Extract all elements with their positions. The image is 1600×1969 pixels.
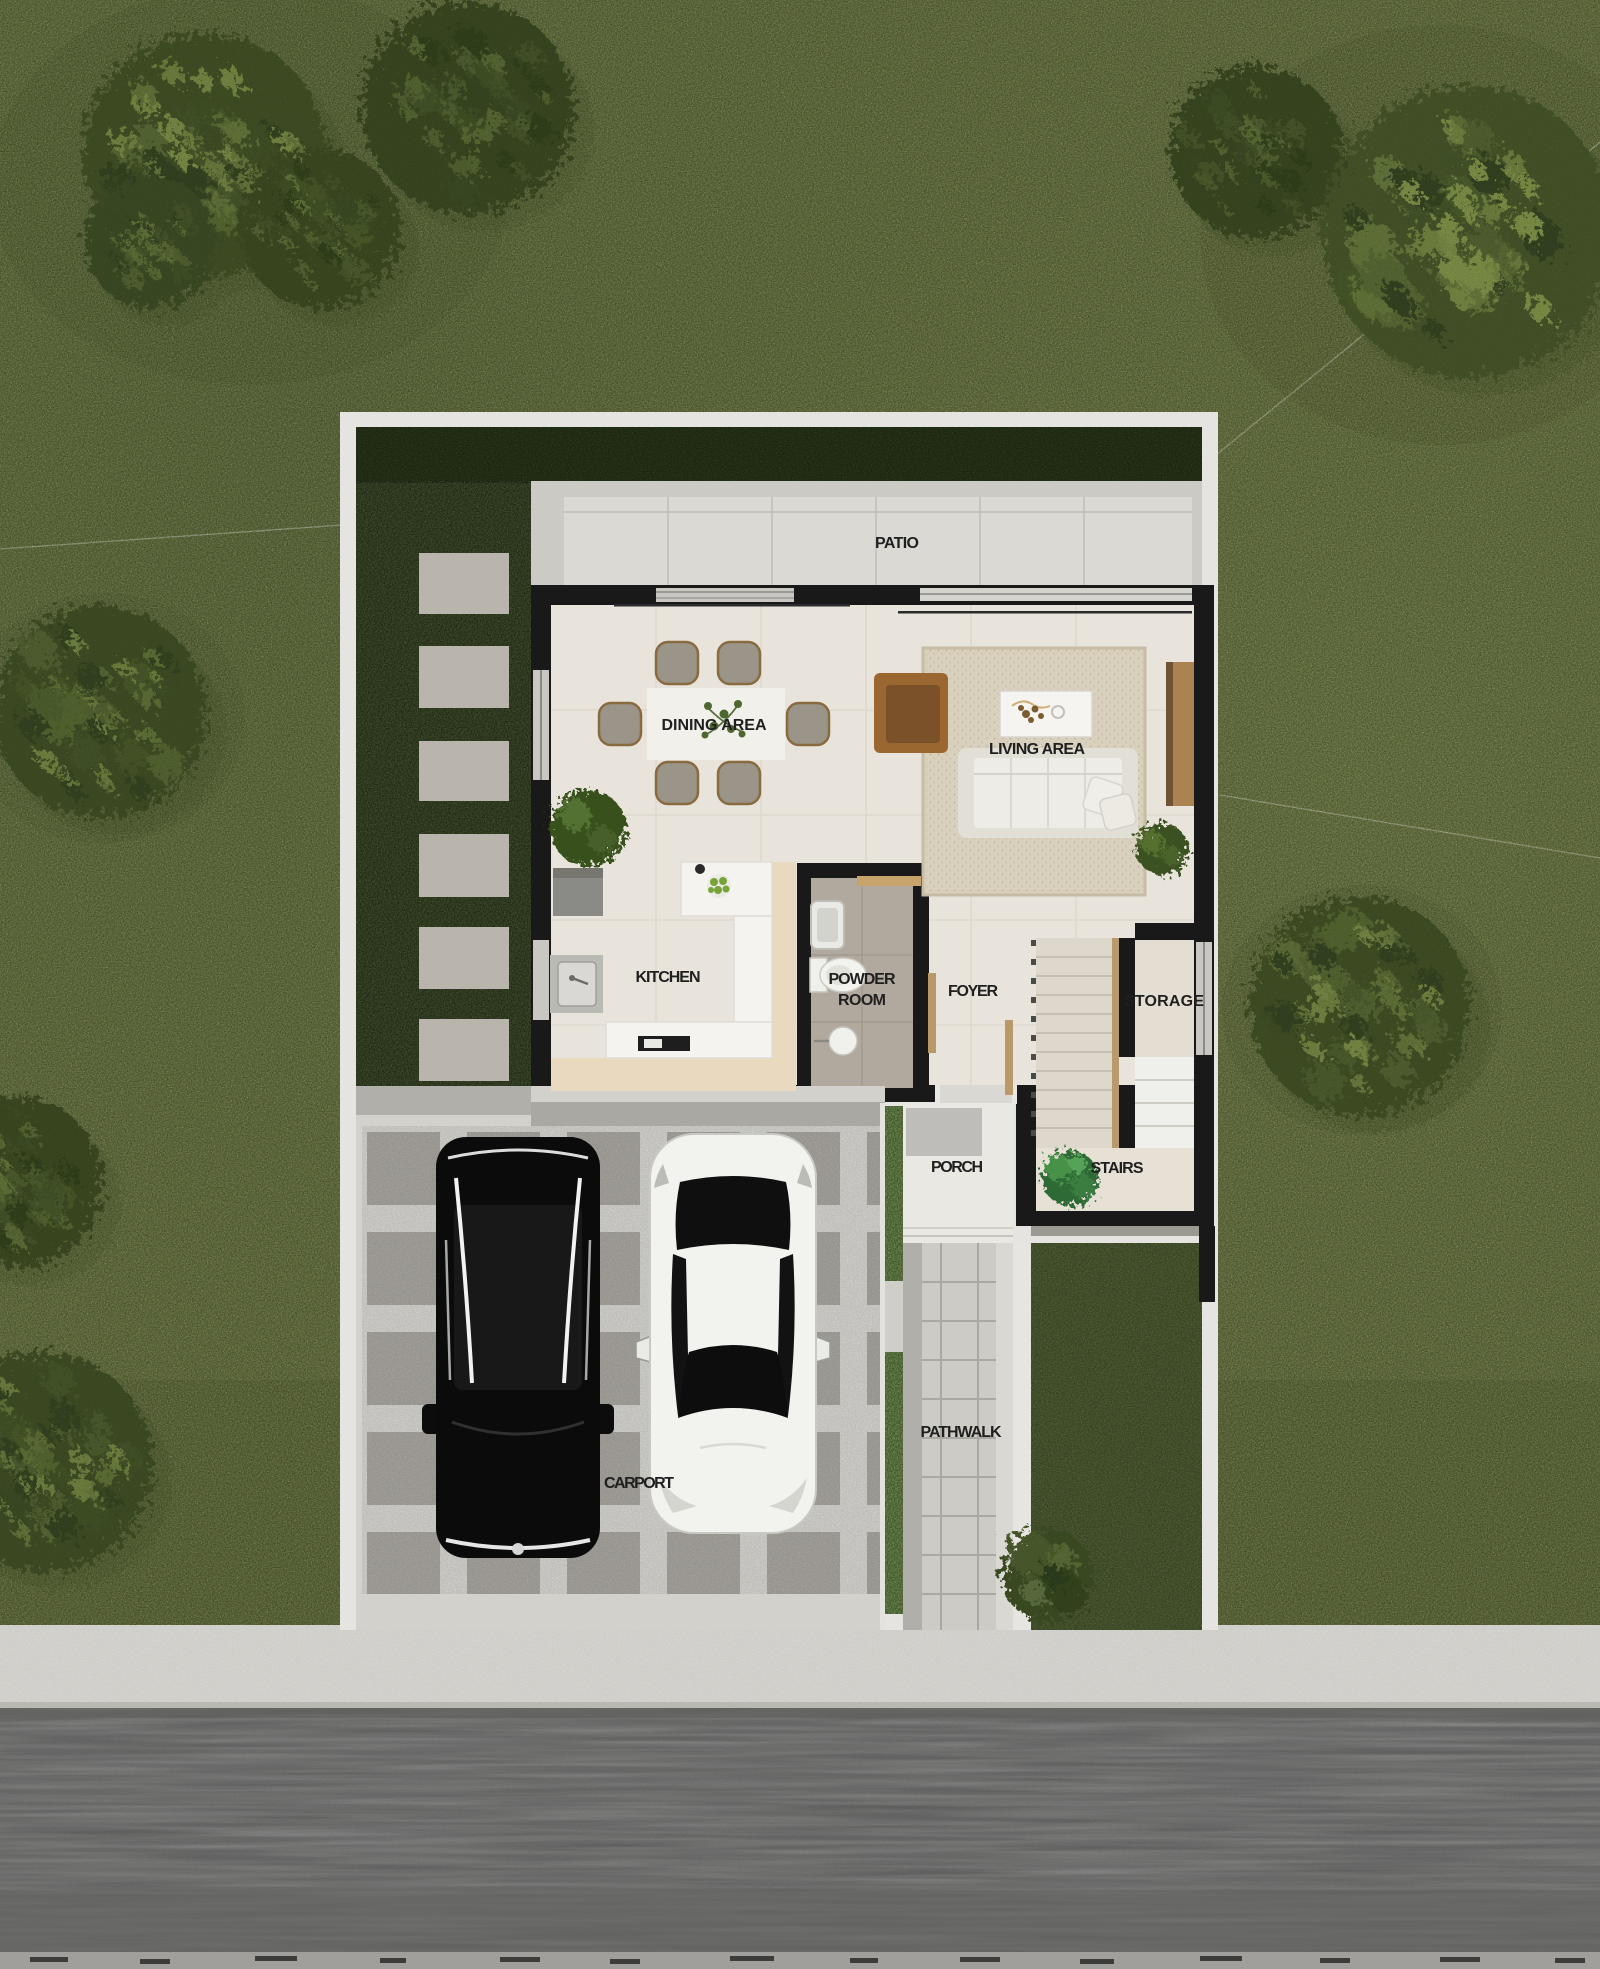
svg-text:STORAGE: STORAGE <box>1124 993 1204 1010</box>
svg-text:FOYER: FOYER <box>948 983 998 1000</box>
svg-text:POWDER: POWDER <box>829 971 896 988</box>
svg-text:PORCH: PORCH <box>931 1159 983 1176</box>
svg-text:LIVING AREA: LIVING AREA <box>989 741 1085 758</box>
svg-text:KITCHEN: KITCHEN <box>636 969 701 986</box>
svg-text:PATHWALK: PATHWALK <box>921 1424 1002 1441</box>
svg-text:STAIRS: STAIRS <box>1091 1160 1144 1177</box>
svg-text:ROOM: ROOM <box>838 992 886 1009</box>
svg-text:PATIO: PATIO <box>875 535 919 552</box>
svg-text:DINING AREA: DINING AREA <box>662 717 767 734</box>
svg-text:CARPORT: CARPORT <box>604 1475 674 1492</box>
